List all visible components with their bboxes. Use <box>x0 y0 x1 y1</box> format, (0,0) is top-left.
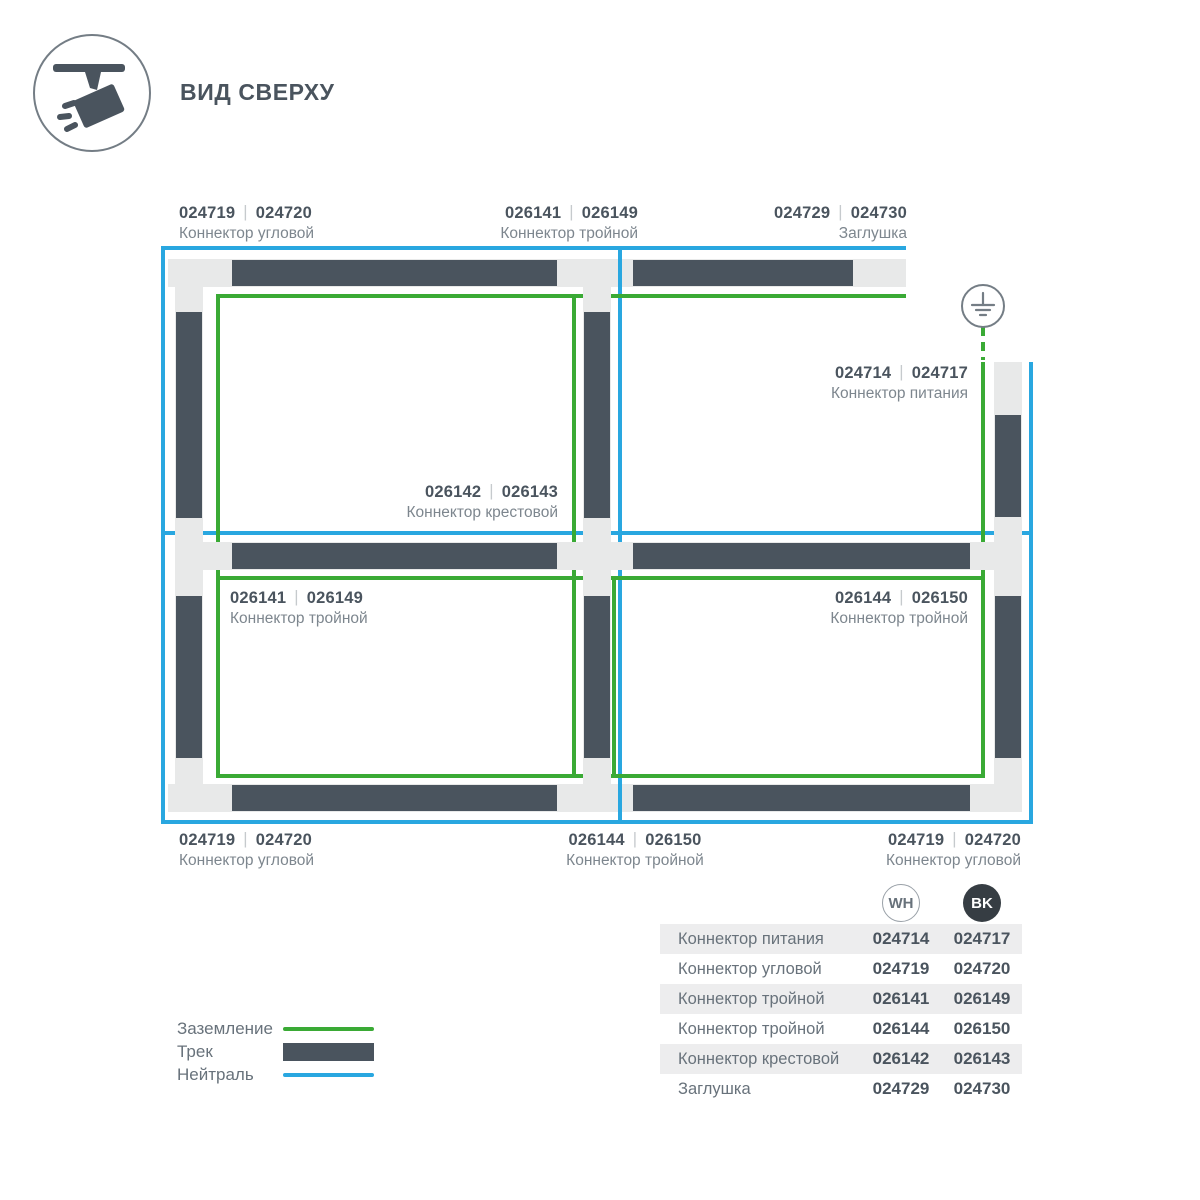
label-codes: 026141|026149 <box>230 589 368 607</box>
track-segment <box>995 415 1021 517</box>
label-name: Коннектор крестовой <box>407 504 558 521</box>
part-name: Коннектор тройной <box>660 990 860 1009</box>
earth-ground-icon <box>961 284 1005 328</box>
track-segment <box>232 543 557 569</box>
neutral-line-top <box>161 246 906 250</box>
legend-label: Нейтраль <box>177 1065 283 1085</box>
table-row: Коннектор тройной 026144 026150 <box>660 1014 1022 1044</box>
table-row: Коннектор крестовой 026142 026143 <box>660 1044 1022 1074</box>
ground-line-bottom-b <box>611 774 985 778</box>
track-segment <box>232 260 557 286</box>
white-color-badge: WH <box>882 884 920 922</box>
legend-item-neutral: Нейтраль <box>177 1063 377 1086</box>
part-code-bk: 024730 <box>942 1079 1022 1099</box>
part-code-wh: 026141 <box>860 989 942 1009</box>
label-corner-bottom-right: 024719|024720 Коннектор угловой <box>886 831 1021 869</box>
track-segment <box>176 312 202 518</box>
ground-line-right-upper <box>981 362 985 542</box>
neutral-line-middle-c <box>611 531 994 535</box>
neutral-line-middle-b <box>203 531 583 535</box>
label-codes: 024719|024720 <box>179 204 314 222</box>
black-color-badge: BK <box>963 884 1001 922</box>
label-tee-bottom-center: 026144|026150 Коннектор тройной <box>500 831 770 869</box>
label-codes: 024719|024720 <box>179 831 314 849</box>
part-code-wh: 026144 <box>860 1019 942 1039</box>
part-code-wh: 026142 <box>860 1049 942 1069</box>
ground-line-left-upper <box>216 294 220 542</box>
label-name: Коннектор питания <box>831 385 968 402</box>
label-tee-mid-left: 026141|026149 Коннектор тройной <box>230 589 368 627</box>
neutral-line-right <box>1029 362 1033 824</box>
part-code-bk: 024720 <box>942 959 1022 979</box>
track-swatch <box>283 1043 374 1061</box>
table-row: Коннектор питания 024714 024717 <box>660 924 1022 954</box>
label-name: Заглушка <box>774 225 907 242</box>
label-name: Коннектор угловой <box>886 852 1021 869</box>
part-name: Коннектор крестовой <box>660 1050 860 1069</box>
track-segment <box>995 596 1021 758</box>
label-tee-top-center: 026141|026149 Коннектор тройной <box>500 204 638 242</box>
label-codes: 026144|026150 <box>830 589 968 607</box>
neutral-line-bottom <box>161 820 1033 824</box>
label-tee-mid-right: 026144|026150 Коннектор тройной <box>830 589 968 627</box>
part-code-wh: 024714 <box>860 929 942 949</box>
table-row: Коннектор угловой 024719 024720 <box>660 954 1022 984</box>
part-code-wh: 024719 <box>860 959 942 979</box>
label-name: Коннектор тройной <box>830 610 968 627</box>
label-codes: 024719|024720 <box>886 831 1021 849</box>
label-codes: 026142|026143 <box>407 483 558 501</box>
track-segment <box>176 596 202 758</box>
label-endcap-top-right: 024729|024730 Заглушка <box>774 204 907 242</box>
page-title: ВИД СВЕРХУ <box>180 79 335 106</box>
legend-label: Трек <box>177 1042 283 1062</box>
legend-label: Заземление <box>177 1019 283 1039</box>
ground-line-left-lower <box>216 570 220 778</box>
part-code-bk: 026150 <box>942 1019 1022 1039</box>
ground-line-center-lower <box>572 570 576 778</box>
part-name: Коннектор тройной <box>660 1020 860 1039</box>
label-name: Коннектор тройной <box>500 225 638 242</box>
legend-item-track: Трек <box>177 1040 377 1063</box>
label-codes: 024729|024730 <box>774 204 907 222</box>
ground-line-right-lower <box>981 570 985 778</box>
label-codes: 026141|026149 <box>500 204 638 222</box>
table-row: Заглушка 024729 024730 <box>660 1074 1022 1104</box>
ground-line-top-a <box>216 294 583 298</box>
part-code-bk: 026149 <box>942 989 1022 1009</box>
part-name: Коннектор питания <box>660 930 860 949</box>
color-column-black: BK <box>942 884 1022 922</box>
legend-swatch-wrap <box>283 1043 374 1061</box>
track-spotlight-glyph <box>35 36 149 150</box>
legend-swatch-wrap <box>283 1073 374 1077</box>
legend-item-ground: Заземление <box>177 1017 377 1040</box>
legend-swatch-wrap <box>283 1027 374 1031</box>
ground-line-middle-a <box>216 576 583 580</box>
track-spotlight-icon <box>33 34 151 152</box>
track-segment <box>633 260 853 286</box>
part-name: Заглушка <box>660 1080 860 1099</box>
track-segment <box>584 312 610 518</box>
label-codes: 024714|024717 <box>831 364 968 382</box>
label-cross-connector: 026142|026143 Коннектор крестовой <box>407 483 558 521</box>
label-name: Коннектор тройной <box>500 852 770 869</box>
table-row: Коннектор тройной 026141 026149 <box>660 984 1022 1014</box>
label-corner-top-left: 024719|024720 Коннектор угловой <box>179 204 314 242</box>
ground-line-bottom-a <box>216 774 583 778</box>
label-codes: 026144|026150 <box>500 831 770 849</box>
track-segment <box>232 785 557 811</box>
page: ВИД СВЕРХУ <box>0 0 1200 1200</box>
track-segment <box>584 596 610 758</box>
part-code-wh: 024729 <box>860 1079 942 1099</box>
label-name: Коннектор угловой <box>179 852 314 869</box>
ground-line-middle-b <box>611 576 985 580</box>
ground-line-dashed <box>981 327 985 360</box>
ground-line-center-upper <box>572 294 576 542</box>
ground-line-swatch <box>283 1027 374 1031</box>
neutral-line-left <box>161 246 165 824</box>
label-corner-bottom-left: 024719|024720 Коннектор угловой <box>179 831 314 869</box>
parts-table: WH BK Коннектор питания 024714 024717 Ко… <box>660 882 1022 1104</box>
ground-line-top-b <box>611 294 906 298</box>
legend: Заземление Трек Нейтраль <box>177 1017 377 1086</box>
label-name: Коннектор тройной <box>230 610 368 627</box>
color-column-white: WH <box>860 884 942 922</box>
neutral-line-center-upper <box>618 246 622 542</box>
track-segment <box>633 785 970 811</box>
ground-line-cell-right <box>612 576 616 778</box>
part-code-bk: 024717 <box>942 929 1022 949</box>
part-name: Коннектор угловой <box>660 960 860 979</box>
earth-ground-glyph <box>963 286 1003 326</box>
label-power-connector: 024714|024717 Коннектор питания <box>831 364 968 402</box>
track-segment <box>633 543 970 569</box>
parts-table-header: WH BK <box>660 882 1022 924</box>
label-name: Коннектор угловой <box>179 225 314 242</box>
part-code-bk: 026143 <box>942 1049 1022 1069</box>
neutral-line-middle-a <box>161 531 175 535</box>
neutral-line-center-lower <box>618 570 622 824</box>
neutral-line-swatch <box>283 1073 374 1077</box>
